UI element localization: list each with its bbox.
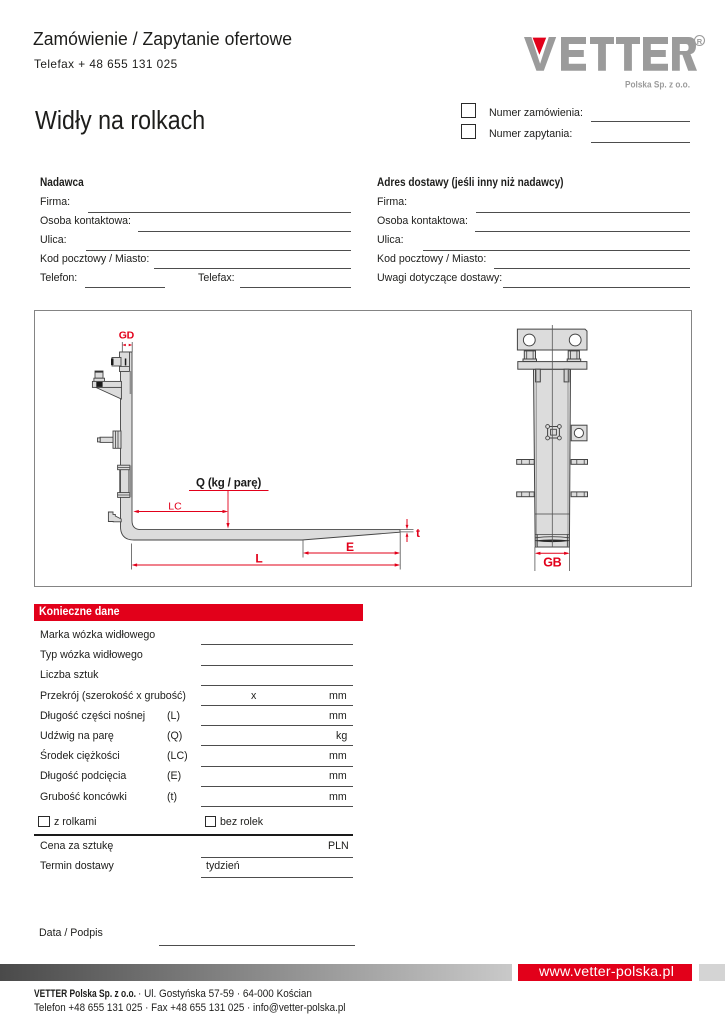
svg-text:L: L bbox=[255, 552, 262, 566]
svg-text:Polska Sp. z o.o.: Polska Sp. z o.o. bbox=[625, 79, 690, 90]
svg-text:E: E bbox=[346, 540, 354, 554]
svg-text:GD: GD bbox=[119, 329, 135, 341]
svg-text:LC: LC bbox=[168, 501, 182, 513]
svg-text:t: t bbox=[416, 526, 420, 540]
svg-text:GB: GB bbox=[543, 555, 561, 569]
svg-text:R: R bbox=[697, 37, 703, 46]
svg-text:Q (kg / parę): Q (kg / parę) bbox=[196, 478, 261, 490]
